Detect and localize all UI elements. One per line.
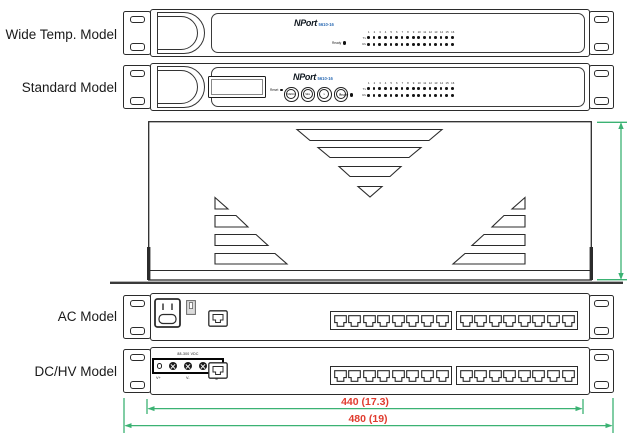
screw-slot xyxy=(594,16,609,24)
led-dot xyxy=(451,94,454,97)
led-dot xyxy=(440,36,443,39)
rj45-port xyxy=(562,370,575,382)
led-dot xyxy=(378,43,381,46)
led-dot xyxy=(401,36,404,39)
label-standard-model: Standard Model xyxy=(0,80,117,95)
led-dot xyxy=(412,43,415,46)
panel-button: MENU xyxy=(284,87,299,102)
screw-slot xyxy=(130,70,145,78)
led-dot xyxy=(384,87,387,90)
led-dot xyxy=(434,87,437,90)
rack-ear-right xyxy=(589,295,614,339)
rack-ear-left xyxy=(123,65,151,109)
rj45-port xyxy=(392,370,405,382)
mounting-tab-right xyxy=(590,247,593,280)
led-dot xyxy=(440,94,443,97)
led-row: Rx xyxy=(358,41,456,48)
bezel-curve-inner xyxy=(157,16,198,50)
led-dot xyxy=(434,36,437,39)
led-dot xyxy=(406,87,409,90)
ready-led-dot xyxy=(350,93,353,96)
led-dot xyxy=(412,36,415,39)
led-dot xyxy=(445,43,448,46)
rj45-port xyxy=(436,370,449,382)
led-dot xyxy=(378,87,381,90)
rj45-port xyxy=(363,315,376,327)
bezel-curve-inner xyxy=(157,70,198,104)
rj45-port xyxy=(503,370,516,382)
screw-slot xyxy=(130,327,145,335)
power-switch xyxy=(186,300,196,315)
rj45-port-group xyxy=(330,311,452,330)
led-dot xyxy=(406,36,409,39)
led-dot xyxy=(423,94,426,97)
led-dot xyxy=(440,87,443,90)
model-number: 5610-16 xyxy=(318,76,333,81)
screw-slot xyxy=(130,300,145,308)
label-ac-model: AC Model xyxy=(0,309,117,324)
led-dot xyxy=(429,43,432,46)
led-dot xyxy=(401,43,404,46)
led-dot xyxy=(390,43,393,46)
lcd-display xyxy=(208,76,266,98)
ready-label: Ready xyxy=(332,41,341,45)
terminal-symbol: V+ xyxy=(156,376,161,381)
led-dot xyxy=(429,87,432,90)
ready-led: Ready xyxy=(332,41,346,45)
rj45-port-group xyxy=(456,366,578,385)
led-dot xyxy=(373,87,376,90)
screw-slot xyxy=(594,381,609,389)
led-dot xyxy=(367,36,370,39)
led-dot xyxy=(417,43,420,46)
reset-button: Reset xyxy=(270,88,283,92)
led-dot xyxy=(384,43,387,46)
rj45-port xyxy=(334,315,347,327)
led-dot xyxy=(445,94,448,97)
led-dot xyxy=(412,94,415,97)
led-dot xyxy=(401,94,404,97)
screw-slot xyxy=(594,300,609,308)
terminal-screw xyxy=(199,362,208,371)
rj45-port xyxy=(547,370,560,382)
led-row-label: Rx xyxy=(358,42,367,46)
led-dot xyxy=(401,87,404,90)
led-dot xyxy=(395,94,398,97)
panel-button: SEL xyxy=(301,87,316,102)
led-row: Tx xyxy=(358,35,456,42)
led-dot xyxy=(429,94,432,97)
led-dot xyxy=(367,43,370,46)
nport-logo: NPort 5610-16 xyxy=(293,72,333,82)
led-dot xyxy=(417,87,420,90)
led-dot xyxy=(434,94,437,97)
dimension-body-width: 440 (17.3) xyxy=(265,396,465,408)
rack-ear-right xyxy=(589,65,614,109)
model-number: 5610-16 xyxy=(319,22,334,27)
rack-ear-right xyxy=(589,349,614,393)
led-dot xyxy=(451,43,454,46)
screw-slot xyxy=(594,70,609,78)
ac-power-inlet xyxy=(154,298,181,328)
led-dot xyxy=(434,43,437,46)
rear-panel-ac xyxy=(123,293,614,341)
ethernet-jack xyxy=(208,362,228,379)
rj45-port xyxy=(532,315,545,327)
rj45-port xyxy=(406,315,419,327)
led-dot xyxy=(412,87,415,90)
led-dot xyxy=(445,36,448,39)
led-dot xyxy=(367,94,370,97)
rj45-port xyxy=(377,370,390,382)
screw-slot xyxy=(594,97,609,105)
reset-label: Reset xyxy=(270,88,278,92)
screw-slot xyxy=(130,381,145,389)
screw-slot xyxy=(130,97,145,105)
led-dot xyxy=(373,94,376,97)
panel-button-label: ∧ xyxy=(340,93,342,96)
rj45-port xyxy=(348,370,361,382)
rj45-port xyxy=(460,370,473,382)
rj45-port xyxy=(421,315,434,327)
dimension-diagram: Wide Temp. Model Standard Model AC Model… xyxy=(0,0,634,440)
terminal-screw xyxy=(169,362,178,371)
terminal-hole xyxy=(157,363,163,369)
rj45-port xyxy=(474,370,487,382)
led-dot xyxy=(451,87,454,90)
screw-slot xyxy=(594,327,609,335)
rj45-port xyxy=(392,315,405,327)
rj45-port xyxy=(436,315,449,327)
led-dot xyxy=(423,87,426,90)
screw-slot xyxy=(130,16,145,24)
rj45-port xyxy=(348,315,361,327)
rj45-port xyxy=(377,315,390,327)
label-dc-hv-model: DC/HV Model xyxy=(0,364,117,379)
dimension-overall-width: 480 (19) xyxy=(268,413,468,425)
brand-wordmark: NPort xyxy=(293,72,316,82)
ready-led-dot xyxy=(343,41,346,44)
rack-ear-left xyxy=(123,11,151,55)
led-dot xyxy=(445,87,448,90)
led-dot xyxy=(429,36,432,39)
led-dot xyxy=(406,94,409,97)
screw-slot xyxy=(594,43,609,51)
terminal-symbol: V- xyxy=(186,376,190,381)
rj45-port xyxy=(474,315,487,327)
led-dot xyxy=(384,36,387,39)
led-dot xyxy=(417,94,420,97)
led-dot xyxy=(373,43,376,46)
rear-panel-dc-hv: 88-300 VDC V+V-⊕ xyxy=(123,347,614,395)
led-dot xyxy=(378,36,381,39)
nport-logo: NPort 5610-16 xyxy=(294,18,334,28)
led-row-label: Tx xyxy=(358,87,367,91)
panel-button: ∨ xyxy=(317,87,332,102)
rj45-port xyxy=(334,370,347,382)
led-dot xyxy=(373,36,376,39)
terminal-rating-label: 88-300 VDC xyxy=(150,352,226,356)
rj45-port xyxy=(518,370,531,382)
rj45-port xyxy=(460,315,473,327)
led-dot xyxy=(451,36,454,39)
led-dot xyxy=(390,36,393,39)
label-wide-temp-model: Wide Temp. Model xyxy=(0,27,117,42)
port-led-grid: 12345678910111213141516TxRx xyxy=(358,30,456,48)
screw-slot xyxy=(130,43,145,51)
screw-slot xyxy=(594,354,609,362)
mounting-tab-left xyxy=(147,247,150,280)
rj45-port xyxy=(363,370,376,382)
reset-dot xyxy=(280,89,283,92)
port-led-grid: 12345678910111213141516TxRx xyxy=(358,81,456,99)
led-dot xyxy=(384,94,387,97)
rj45-port-group xyxy=(456,311,578,330)
led-dot xyxy=(378,94,381,97)
led-dot xyxy=(423,43,426,46)
rj45-port xyxy=(489,315,502,327)
led-dot xyxy=(395,43,398,46)
led-dot xyxy=(390,87,393,90)
led-dot xyxy=(367,87,370,90)
rack-ear-left xyxy=(123,349,151,393)
rj45-port xyxy=(503,315,516,327)
rj45-port xyxy=(532,370,545,382)
terminal-screw xyxy=(184,362,193,371)
led-dot xyxy=(395,36,398,39)
led-dot xyxy=(406,43,409,46)
top-view-outline xyxy=(110,122,623,283)
panel-button-label: SEL xyxy=(305,93,310,96)
led-dot xyxy=(395,87,398,90)
led-row: Tx xyxy=(358,86,456,93)
rack-ear-right xyxy=(589,11,614,55)
rj45-port xyxy=(562,315,575,327)
rj45-port xyxy=(421,370,434,382)
rack-ear-left xyxy=(123,295,151,339)
led-dot xyxy=(417,36,420,39)
panel-button-label: ∨ xyxy=(323,93,325,96)
led-dot xyxy=(423,36,426,39)
led-dot xyxy=(390,94,393,97)
rj45-port-group xyxy=(330,366,452,385)
brand-wordmark: NPort xyxy=(294,18,317,28)
led-row-label: Tx xyxy=(358,36,367,40)
front-panel-standard: Reset MENUSEL∨∧ NPort 5610-16 Ready 1234… xyxy=(123,63,614,111)
rj45-port xyxy=(547,315,560,327)
rj45-port xyxy=(489,370,502,382)
led-dot xyxy=(440,43,443,46)
depth-dimension-line xyxy=(597,122,627,279)
rj45-port xyxy=(518,315,531,327)
front-panel-wide-temp: NPort 5610-16 Ready 12345678910111213141… xyxy=(123,9,614,57)
panel-button-label: MENU xyxy=(287,93,295,96)
led-row: Rx xyxy=(358,92,456,99)
ethernet-jack xyxy=(208,310,228,327)
led-row-label: Rx xyxy=(358,93,367,97)
screw-slot xyxy=(130,354,145,362)
rj45-port xyxy=(406,370,419,382)
